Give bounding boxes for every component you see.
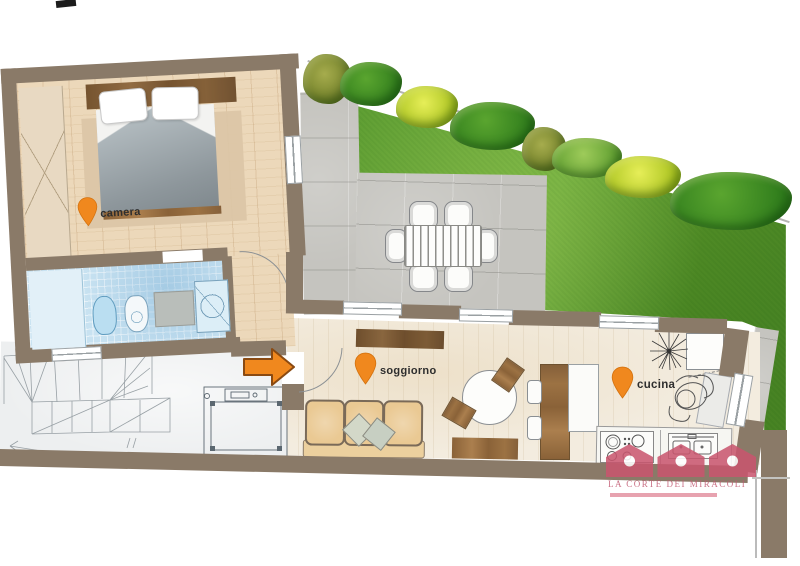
door-swing-arc — [234, 246, 293, 307]
plant-sketch — [648, 330, 690, 372]
sideboard — [356, 329, 444, 349]
window — [285, 135, 303, 184]
wall-living-top — [286, 299, 344, 314]
logo-houses-icon — [606, 444, 756, 477]
door-swing-arc — [295, 342, 347, 396]
hedge-bush — [605, 156, 681, 198]
island-counter — [568, 364, 599, 432]
agency-logo: LA CORTE DEI MIRACOLI — [604, 443, 760, 503]
sofa — [303, 397, 426, 458]
window — [599, 315, 659, 330]
bath-door-gap — [162, 250, 203, 263]
pillow — [98, 87, 148, 125]
bench — [452, 437, 518, 459]
wall-living-top — [399, 304, 461, 319]
wardrobe — [19, 86, 72, 260]
wall-kitchen-top — [655, 317, 727, 334]
location-pin-icon — [611, 366, 634, 399]
kitchen-label: cucina — [637, 380, 675, 392]
location-pin-icon — [76, 196, 99, 227]
bedroom-block: camera — [0, 47, 313, 364]
shower-panel — [28, 269, 86, 350]
window — [51, 346, 102, 362]
outdoor-chair — [444, 263, 473, 292]
location-pin-icon — [354, 352, 377, 385]
stool — [527, 380, 542, 404]
hedge-bush — [396, 86, 458, 128]
floor-plan: camera soggiorno cucina LA CORTE DEI MI — [0, 0, 800, 566]
window — [343, 301, 402, 315]
toilet — [124, 295, 150, 333]
sofa-cushion — [305, 399, 345, 445]
kitchen-island — [540, 364, 570, 460]
wall-outer-right — [761, 430, 787, 558]
bidet — [92, 295, 118, 335]
stool — [527, 416, 542, 440]
logo-underline — [610, 493, 717, 497]
hedge-bush — [670, 172, 792, 230]
entrance-arrow-icon — [242, 346, 296, 388]
window — [459, 308, 513, 322]
outdoor-table — [404, 225, 482, 267]
pillow — [151, 87, 199, 121]
agency-name: LA CORTE DEI MIRACOLI — [608, 479, 720, 489]
outdoor-chair — [409, 263, 438, 292]
scan-mark — [56, 0, 77, 8]
hedge-bush — [340, 62, 402, 106]
wall-living-top — [509, 310, 601, 327]
tall-cabinet — [686, 333, 724, 370]
bedroom-label: camera — [100, 207, 141, 220]
living-label: soggiorno — [380, 366, 436, 377]
lift-drawing — [203, 386, 289, 458]
armchair-sketch — [658, 368, 720, 424]
shower-tray — [194, 279, 231, 333]
bath-mat — [154, 290, 196, 327]
